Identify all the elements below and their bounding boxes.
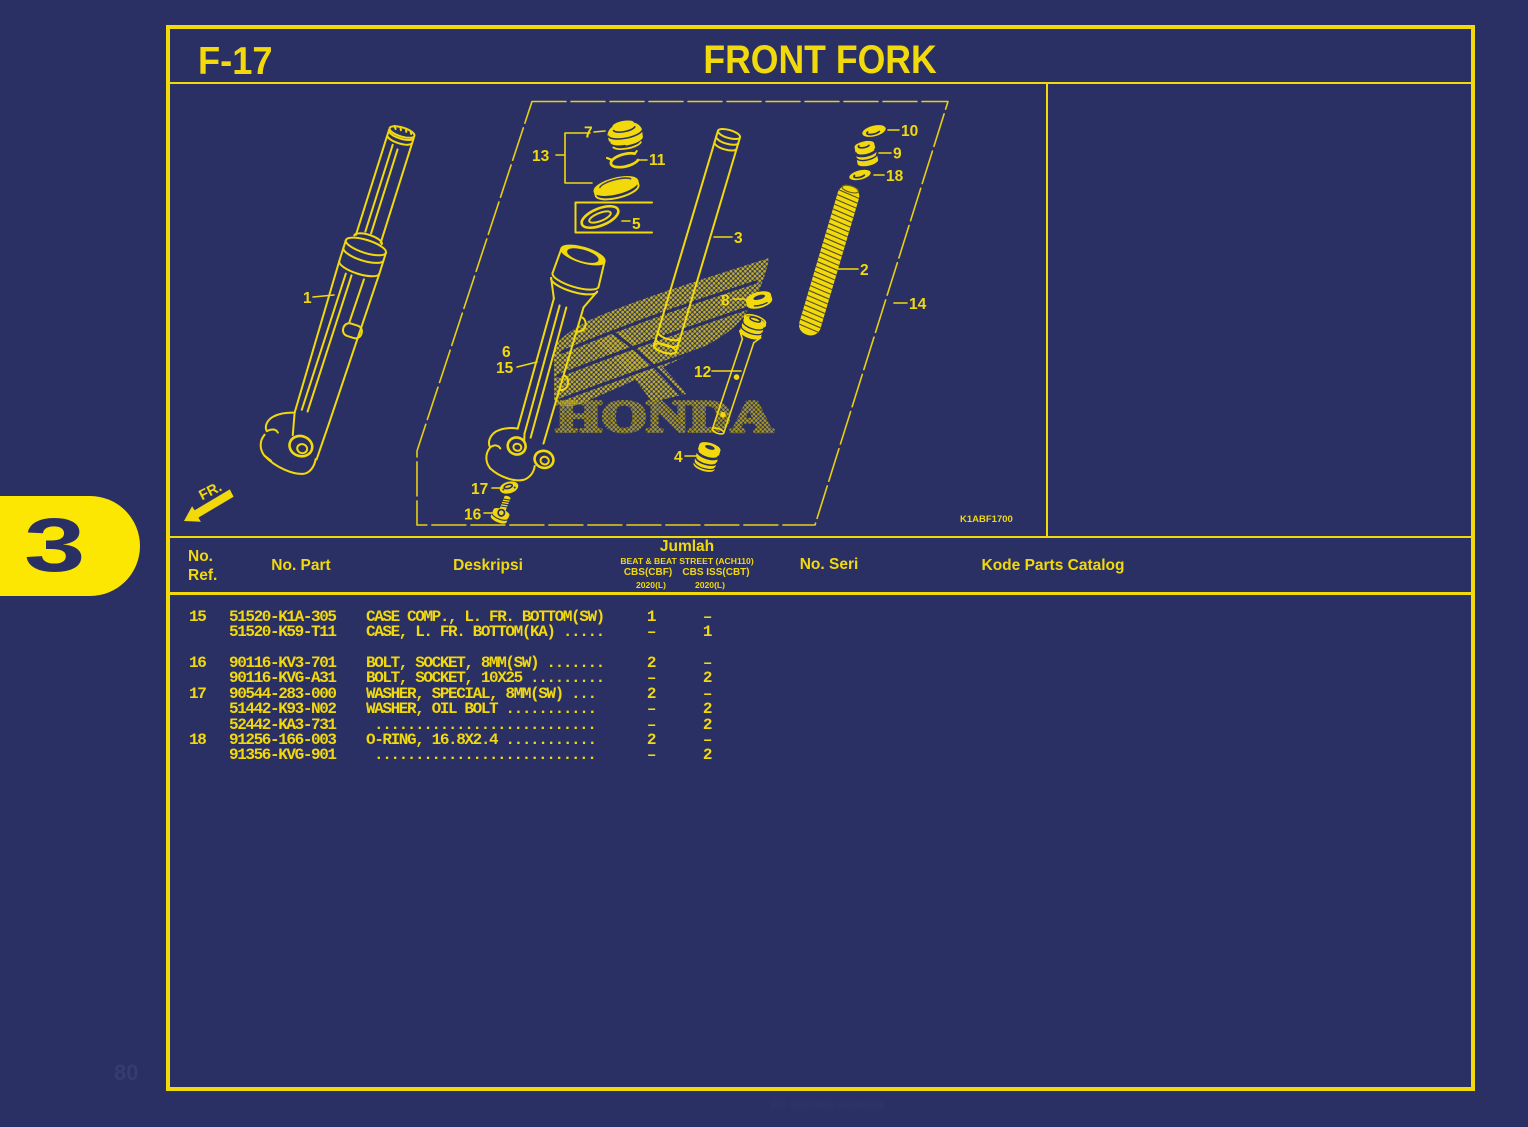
svg-text:16: 16 [464, 507, 482, 524]
svg-text:6: 6 [502, 344, 511, 361]
svg-text:18: 18 [886, 168, 904, 185]
svg-text:17: 17 [471, 481, 488, 498]
svg-text:14: 14 [909, 296, 927, 313]
svg-text:K1ABF1700: K1ABF1700 [960, 514, 1013, 525]
svg-text:5: 5 [632, 216, 641, 233]
svg-text:1: 1 [303, 290, 312, 307]
svg-text:HONDA: HONDA [556, 392, 773, 441]
svg-text:8: 8 [721, 293, 730, 310]
svg-text:13: 13 [532, 148, 550, 165]
svg-text:11: 11 [649, 152, 666, 169]
svg-text:15: 15 [496, 360, 514, 377]
svg-text:2: 2 [860, 262, 869, 279]
svg-text:3: 3 [734, 230, 743, 247]
svg-text:9: 9 [893, 146, 902, 163]
svg-text:10: 10 [901, 123, 918, 140]
svg-text:12: 12 [694, 364, 711, 381]
svg-text:4: 4 [674, 449, 683, 466]
